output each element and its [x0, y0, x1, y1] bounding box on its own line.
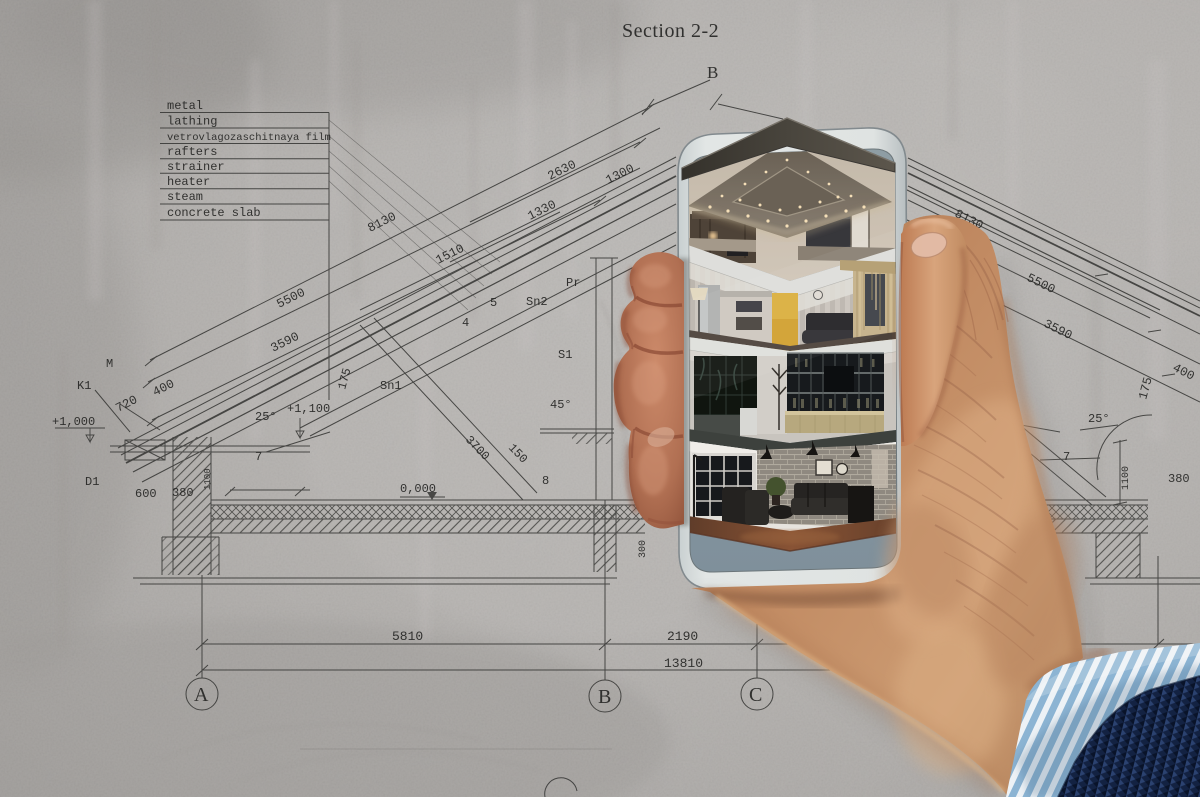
svg-text:Pr: Pr [566, 276, 580, 290]
svg-text:380: 380 [1168, 472, 1190, 486]
svg-text:0,000: 0,000 [400, 482, 436, 496]
svg-text:B: B [707, 63, 718, 82]
svg-text:C: C [749, 684, 762, 706]
svg-text:25°: 25° [255, 410, 277, 424]
svg-text:25°: 25° [1088, 412, 1110, 426]
svg-text:45°: 45° [550, 398, 572, 412]
svg-text:Sn1: Sn1 [380, 379, 402, 393]
svg-text:1100: 1100 [203, 468, 213, 490]
svg-text:4: 4 [462, 316, 469, 330]
svg-text:K1: K1 [77, 379, 91, 393]
svg-text:+1,000: +1,000 [52, 415, 95, 429]
svg-text:7: 7 [255, 450, 262, 464]
svg-text:lathing: lathing [167, 115, 217, 129]
svg-text:2190: 2190 [667, 629, 698, 644]
svg-text:380: 380 [172, 486, 194, 500]
svg-text:steam: steam [167, 190, 203, 204]
svg-text:strainer: strainer [167, 160, 225, 174]
svg-text:S1: S1 [558, 348, 572, 362]
svg-text:rafters: rafters [167, 145, 217, 159]
svg-text:B: B [598, 686, 611, 708]
svg-text:metal: metal [167, 99, 203, 113]
svg-text:600: 600 [135, 487, 157, 501]
svg-text:7: 7 [1063, 450, 1070, 464]
svg-text:heater: heater [167, 175, 210, 189]
svg-text:Sn2: Sn2 [526, 295, 548, 309]
svg-text:concrete slab: concrete slab [167, 206, 261, 220]
svg-text:+1,100: +1,100 [287, 402, 330, 416]
svg-text:1100: 1100 [1121, 466, 1132, 490]
svg-text:M: M [106, 357, 113, 371]
svg-text:300: 300 [638, 540, 649, 558]
svg-text:5810: 5810 [392, 629, 423, 644]
svg-text:vetrovlagozaschitnaya film: vetrovlagozaschitnaya film [167, 132, 331, 144]
svg-text:8: 8 [542, 474, 549, 488]
svg-text:D1: D1 [85, 475, 99, 489]
svg-text:Section 2-2: Section 2-2 [622, 20, 719, 42]
svg-text:A: A [194, 684, 209, 706]
svg-text:5: 5 [490, 296, 497, 310]
svg-text:13810: 13810 [664, 656, 703, 671]
